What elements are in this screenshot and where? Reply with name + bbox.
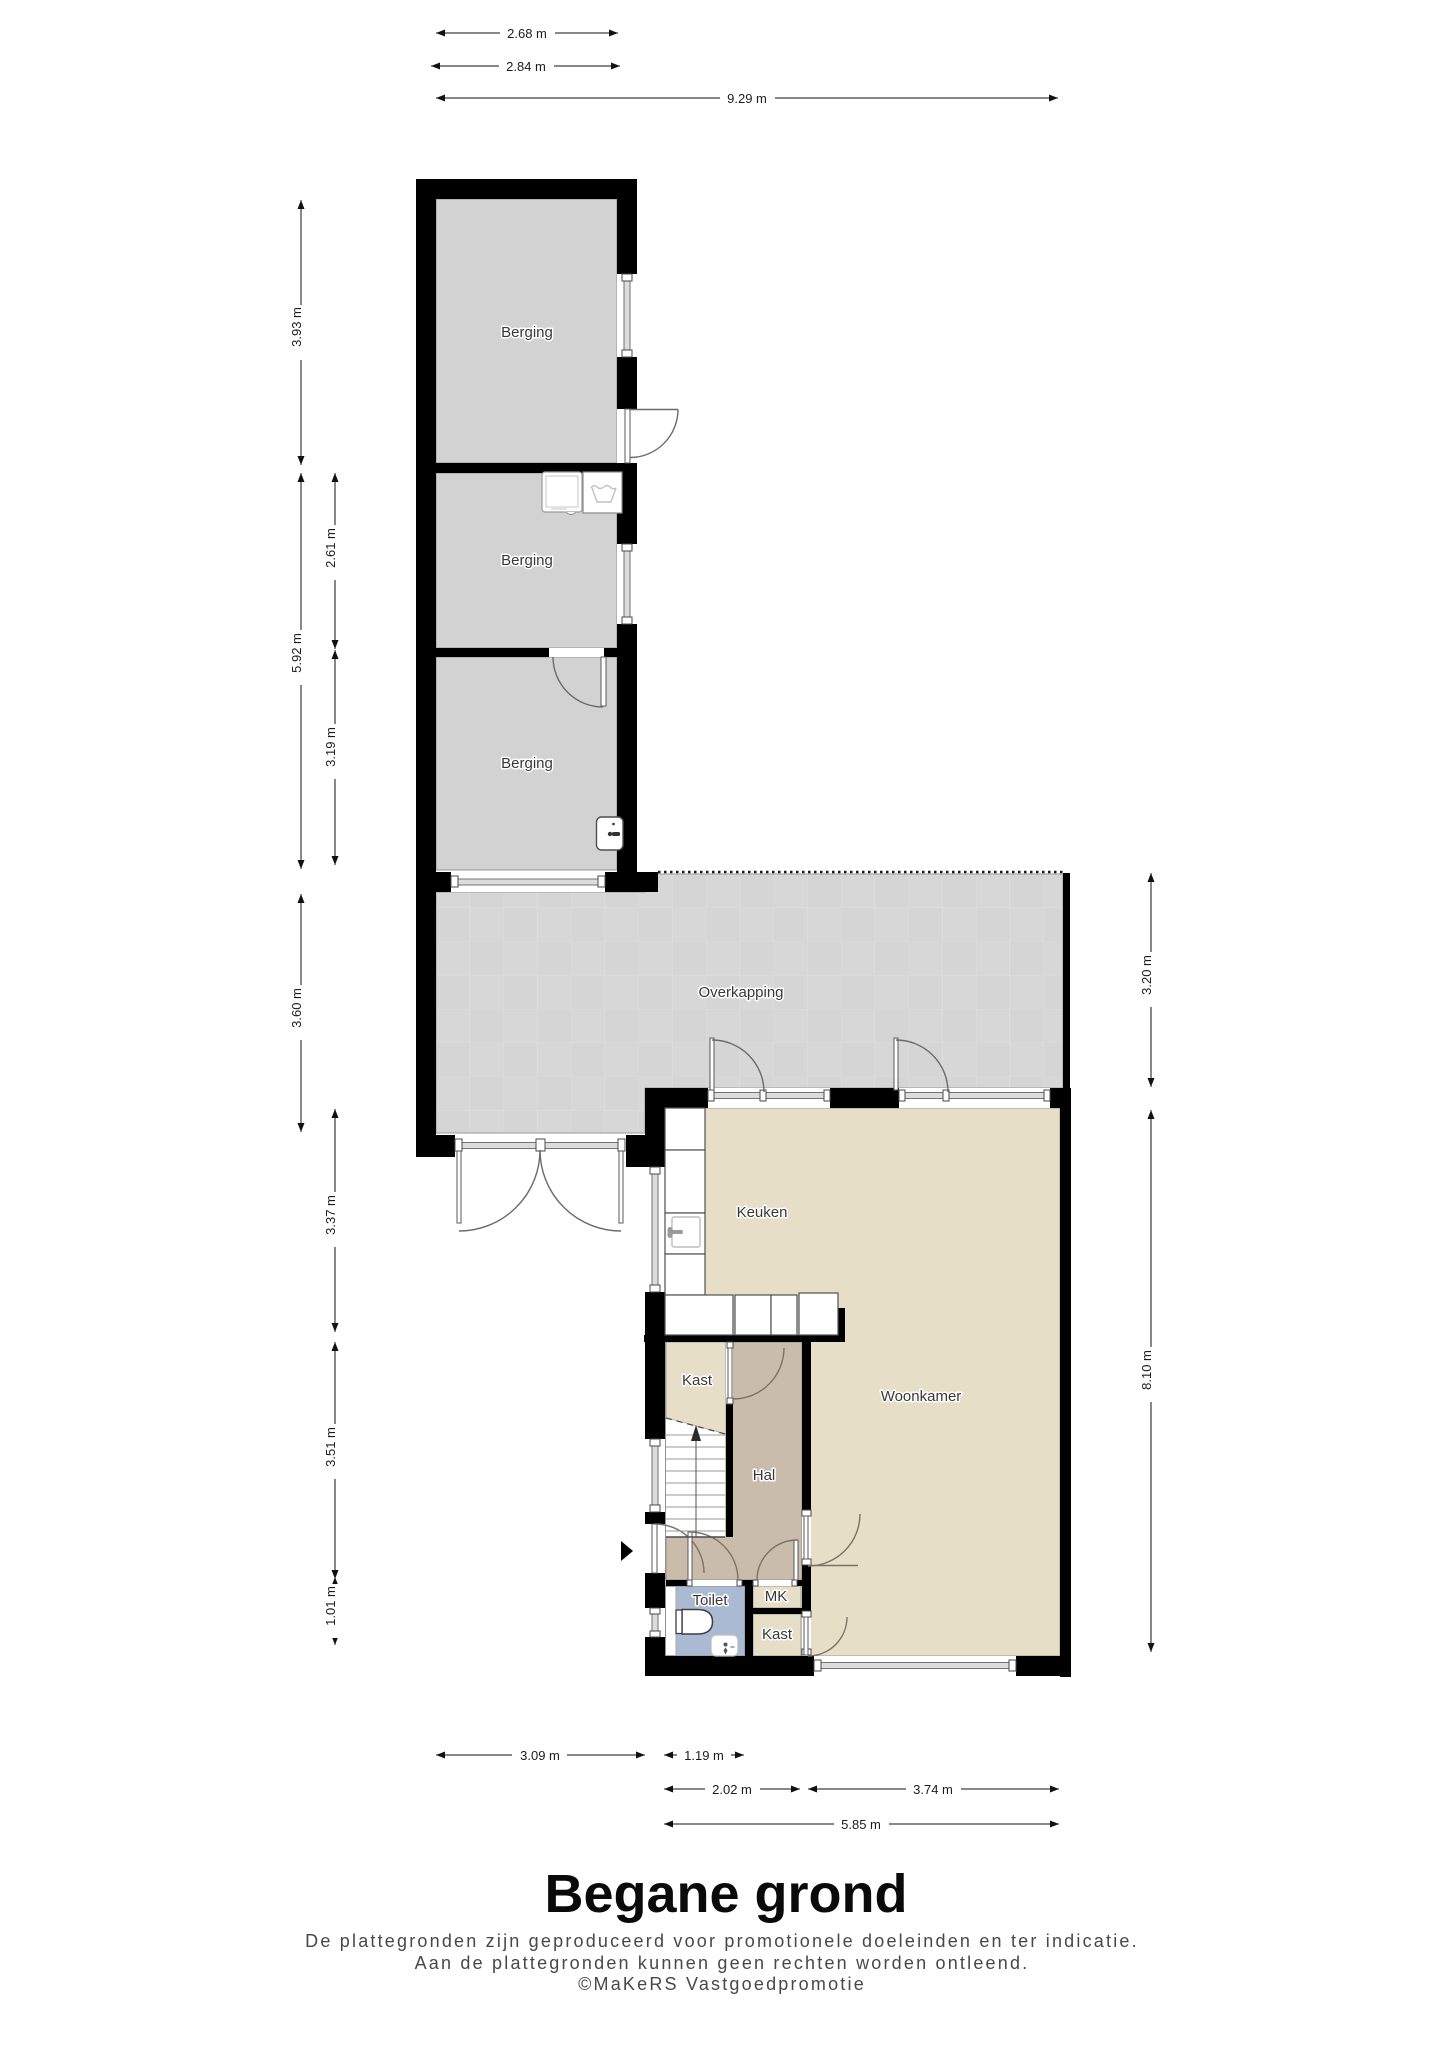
svg-text:Kast: Kast xyxy=(762,1626,793,1643)
svg-text:9.29 m: 9.29 m xyxy=(727,91,767,106)
svg-text:3.60 m: 3.60 m xyxy=(289,988,304,1028)
svg-text:8.10 m: 8.10 m xyxy=(1139,1350,1154,1390)
svg-text:1.01 m: 1.01 m xyxy=(323,1586,338,1626)
svg-text:©MaKeRS Vastgoedpromotie: ©MaKeRS Vastgoedpromotie xyxy=(578,1974,866,1994)
svg-text:2.02 m: 2.02 m xyxy=(712,1782,752,1797)
svg-text:2.61 m: 2.61 m xyxy=(323,528,338,568)
svg-text:3.20 m: 3.20 m xyxy=(1139,955,1154,995)
svg-text:Woonkamer: Woonkamer xyxy=(881,1388,962,1405)
svg-text:5.85 m: 5.85 m xyxy=(841,1817,881,1832)
svg-text:3.37 m: 3.37 m xyxy=(323,1195,338,1235)
svg-text:Begane grond: Begane grond xyxy=(544,1864,907,1924)
svg-text:De plattegronden zijn geproduc: De plattegronden zijn geproduceerd voor … xyxy=(305,1931,1139,1951)
svg-text:2.68 m: 2.68 m xyxy=(507,26,547,41)
svg-text:3.19 m: 3.19 m xyxy=(323,727,338,767)
svg-text:Berging: Berging xyxy=(501,552,553,569)
svg-text:Kast: Kast xyxy=(682,1372,713,1389)
svg-text:Toilet: Toilet xyxy=(692,1592,728,1609)
svg-text:Hal: Hal xyxy=(753,1467,776,1484)
svg-text:3.74 m: 3.74 m xyxy=(913,1782,953,1797)
svg-text:Aan de plattegronden kunnen ge: Aan de plattegronden kunnen geen rechten… xyxy=(415,1953,1030,1973)
svg-text:2.84 m: 2.84 m xyxy=(506,59,546,74)
svg-text:Berging: Berging xyxy=(501,324,553,341)
svg-text:Overkapping: Overkapping xyxy=(698,984,783,1001)
svg-text:3.93 m: 3.93 m xyxy=(289,307,304,347)
svg-text:MK: MK xyxy=(765,1588,788,1605)
svg-text:Keuken: Keuken xyxy=(737,1204,788,1221)
svg-text:3.09 m: 3.09 m xyxy=(520,1748,560,1763)
svg-text:5.92 m: 5.92 m xyxy=(289,633,304,673)
svg-text:Berging: Berging xyxy=(501,755,553,772)
svg-text:1.19 m: 1.19 m xyxy=(684,1748,724,1763)
svg-text:3.51 m: 3.51 m xyxy=(323,1427,338,1467)
